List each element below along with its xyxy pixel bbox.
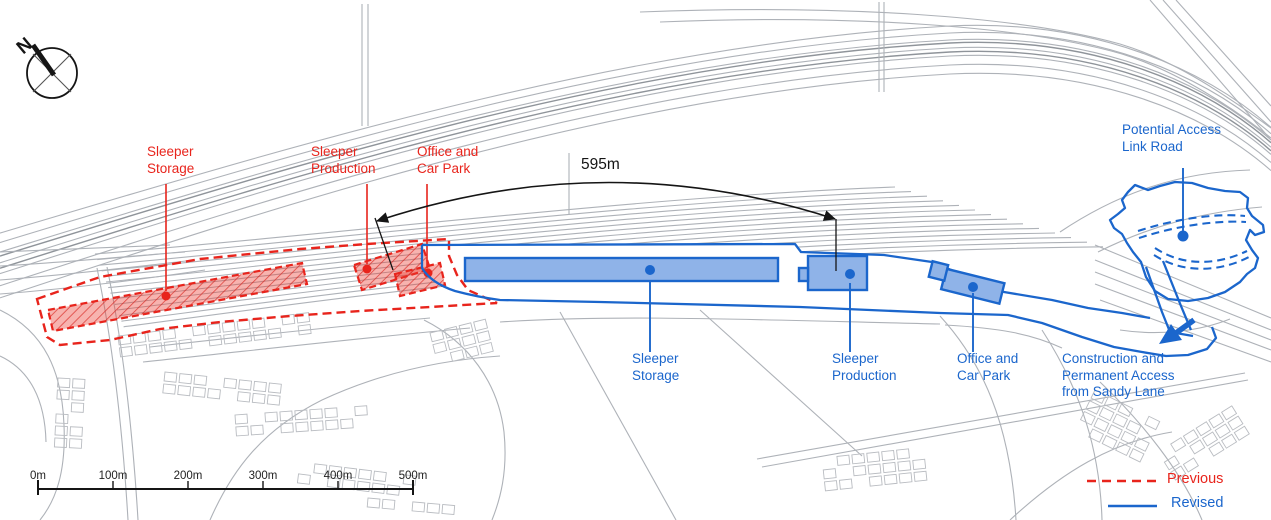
label-previous-office-car-park: Office and Car Park: [417, 144, 478, 177]
site-plan-map: N Sleeper Storage Sleeper Production Off…: [0, 0, 1271, 520]
building-outline: [1190, 440, 1205, 454]
north-compass: N: [13, 34, 77, 98]
linework-path: [0, 32, 1271, 242]
building-outline: [56, 414, 68, 424]
linework-path: [560, 312, 676, 520]
revised-sleeper-storage-building: [465, 258, 778, 281]
previous-production-marker: [363, 265, 372, 274]
building-outline: [311, 421, 324, 431]
building-outline: [357, 481, 370, 491]
building-outline: [884, 474, 897, 484]
building-outline: [882, 450, 895, 460]
building-outline: [382, 499, 395, 509]
building-outline: [164, 341, 177, 351]
building-outline: [1228, 416, 1243, 430]
building-outline: [265, 412, 278, 422]
building-outline: [164, 372, 177, 382]
linework-path: [660, 20, 1271, 138]
building-outline: [1116, 442, 1131, 455]
housing-blocks-linework: [54, 313, 1249, 515]
revised-production-annex: [799, 268, 808, 281]
label-line: Storage: [147, 161, 194, 178]
building-outline: [163, 329, 176, 339]
building-outline: [72, 391, 84, 401]
label-line: Production: [311, 161, 376, 178]
scale-bar: [38, 480, 413, 495]
label-line: Office and: [957, 351, 1018, 368]
building-outline: [1222, 406, 1237, 420]
scale-bar-ticks: [113, 481, 338, 489]
scale-tick-300m: 300m: [235, 470, 291, 482]
building-outline: [1209, 442, 1224, 456]
building-outline: [412, 502, 425, 512]
label-line: Storage: [632, 368, 679, 385]
revised-site-group: [422, 168, 1264, 356]
building-outline: [325, 408, 338, 418]
building-outline: [898, 461, 911, 471]
label-line: Permanent Access: [1062, 368, 1175, 385]
building-outline: [1215, 424, 1230, 438]
building-outline: [367, 498, 380, 508]
building-outline: [192, 325, 205, 335]
building-outline: [914, 471, 927, 481]
building-outline: [207, 324, 220, 334]
linework-path: [1095, 260, 1271, 330]
building-outline: [1196, 422, 1211, 436]
measurement-arc-arrow: [377, 182, 835, 221]
building-outline: [178, 386, 191, 396]
map-canvas: N: [0, 0, 1271, 520]
label-line: Sleeper: [147, 144, 194, 161]
linework-path: [940, 316, 1016, 520]
building-outline: [193, 387, 206, 397]
building-outline: [267, 395, 280, 405]
building-outline: [479, 342, 493, 354]
building-outline: [433, 342, 447, 354]
label-line: Production: [832, 368, 897, 385]
building-outline: [1183, 458, 1198, 472]
building-outline: [239, 380, 252, 390]
building-outline: [1107, 425, 1122, 438]
linework-path: [0, 356, 46, 442]
building-outline: [57, 390, 69, 400]
scale-tick-0m: 0m: [10, 470, 66, 482]
railway-mainline-linework: [0, 0, 1271, 362]
building-outline: [839, 479, 852, 489]
building-outline: [445, 326, 459, 338]
label-line: Potential Access: [1122, 122, 1221, 139]
building-outline: [71, 403, 83, 413]
building-outline: [1234, 426, 1249, 440]
building-outline: [73, 379, 85, 389]
building-outline: [897, 449, 910, 459]
access-corridor-east-edge: [1163, 261, 1191, 330]
building-outline: [837, 455, 850, 465]
linework-path: [1098, 207, 1262, 252]
building-outline: [149, 343, 162, 353]
scale-tick-100m: 100m: [85, 470, 141, 482]
revised-production-marker: [845, 269, 855, 279]
label-line: 595m: [581, 157, 620, 174]
label-line: Link Road: [1122, 139, 1221, 156]
building-outline: [823, 469, 836, 479]
building-outline: [134, 345, 147, 355]
building-outline: [310, 409, 323, 419]
link-road-marker: [1178, 231, 1189, 242]
linework-path: [210, 356, 500, 520]
building-outline: [1113, 414, 1128, 427]
building-outline: [1099, 407, 1114, 420]
building-outline: [355, 406, 368, 416]
building-outline: [1102, 436, 1117, 449]
building-outline: [1222, 434, 1237, 448]
building-outline: [1171, 438, 1186, 452]
building-outline: [869, 476, 882, 486]
building-outline: [913, 459, 926, 469]
label-line: Construction and: [1062, 351, 1175, 368]
label-line: Revised: [1171, 495, 1223, 512]
revised-storage-marker: [645, 265, 655, 275]
revised-office-marker: [968, 282, 978, 292]
building-outline: [1129, 449, 1144, 462]
label-revised-sleeper-production: Sleeper Production: [832, 351, 897, 384]
label-measurement-595m: 595m: [581, 157, 620, 174]
label-line: Sleeper: [832, 351, 897, 368]
building-outline: [179, 339, 192, 349]
building-outline: [442, 505, 455, 515]
legend-previous-label: Previous: [1167, 471, 1223, 488]
label-line: Sleeper: [632, 351, 679, 368]
building-outline: [208, 389, 221, 399]
building-outline: [55, 426, 67, 436]
building-outline: [852, 454, 865, 464]
linework-path: [1176, 0, 1271, 106]
previous-storage-marker: [162, 292, 171, 301]
building-outline: [1134, 438, 1149, 451]
building-outline: [1203, 432, 1218, 446]
building-outline: [268, 383, 281, 393]
scale-tick-400m: 400m: [310, 470, 366, 482]
building-outline: [853, 466, 866, 476]
building-outline: [280, 411, 293, 421]
building-outline: [899, 473, 912, 483]
building-outline: [70, 427, 82, 437]
building-outline: [341, 419, 354, 429]
linework-path: [0, 25, 1271, 233]
building-outline: [224, 378, 237, 388]
building-outline: [297, 474, 310, 484]
building-outline: [236, 426, 249, 436]
building-outline: [1094, 418, 1109, 431]
linework-path: [1095, 245, 1271, 318]
scale-tick-500m: 500m: [385, 470, 441, 482]
legend-revised-label: Revised: [1171, 495, 1223, 512]
building-outline: [1121, 431, 1136, 444]
building-outline: [326, 420, 339, 430]
label-previous-sleeper-production: Sleeper Production: [311, 144, 376, 177]
linework-path: [762, 380, 1248, 467]
scale-bar-end-ticks: [38, 480, 413, 495]
building-outline: [235, 414, 248, 424]
building-outline: [477, 331, 491, 343]
building-outline: [296, 422, 309, 432]
label-sandy-lane-access: Construction and Permanent Access from S…: [1062, 351, 1175, 401]
building-outline: [1145, 416, 1160, 429]
link-road-dashed-alignment: [1155, 248, 1247, 262]
revised-sleeper-production-building: [808, 256, 867, 290]
label-revised-office-car-park: Office and Car Park: [957, 351, 1018, 384]
link-road-dashed-alignment: [1139, 222, 1246, 238]
label-line: Car Park: [957, 368, 1018, 385]
building-outline: [883, 462, 896, 472]
building-outline: [1118, 403, 1133, 416]
label-line: Previous: [1167, 471, 1223, 488]
building-outline: [222, 322, 235, 332]
building-outline: [1183, 430, 1198, 444]
label-revised-sleeper-storage: Sleeper Storage: [632, 351, 679, 384]
label-line: Sleeper: [311, 144, 376, 161]
label-line: Car Park: [417, 161, 478, 178]
building-outline: [179, 374, 192, 384]
building-outline: [252, 393, 265, 403]
building-outline: [163, 384, 176, 394]
building-outline: [462, 334, 476, 346]
building-outline: [251, 425, 264, 435]
building-outline: [868, 464, 881, 474]
legend: [1087, 481, 1157, 506]
label-previous-sleeper-storage: Sleeper Storage: [147, 144, 194, 177]
roads-and-field-linework: [0, 170, 1262, 520]
building-outline: [54, 438, 66, 448]
building-outline: [69, 439, 81, 449]
linework-path: [150, 318, 430, 347]
building-outline: [387, 485, 400, 495]
building-outline: [194, 375, 207, 385]
label-line: Office and: [417, 144, 478, 161]
building-outline: [1209, 414, 1224, 428]
linework-path: [1095, 284, 1271, 350]
building-outline: [867, 452, 880, 462]
label-line: from Sandy Lane: [1062, 384, 1175, 401]
building-outline: [254, 381, 267, 391]
building-outline: [237, 392, 250, 402]
building-outline: [825, 481, 838, 491]
building-outline: [427, 503, 440, 513]
label-potential-access-link-road: Potential Access Link Road: [1122, 122, 1221, 155]
scale-tick-200m: 200m: [160, 470, 216, 482]
building-outline: [474, 319, 488, 331]
